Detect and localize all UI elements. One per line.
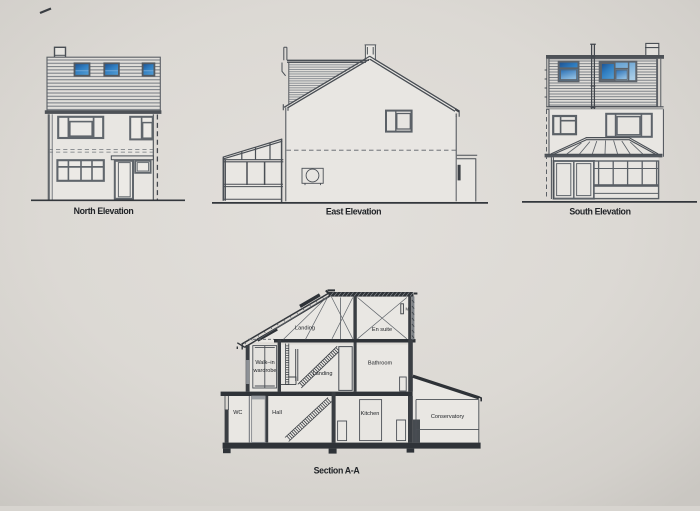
svg-text:Section A-A: Section A-A [314, 465, 361, 475]
svg-text:Bathroom: Bathroom [368, 361, 393, 367]
svg-text:Walk–in: Walk–in [255, 360, 274, 366]
svg-text:M: M [406, 307, 410, 312]
svg-text:North Elevation: North Elevation [74, 206, 134, 216]
svg-text:Hall: Hall [272, 410, 282, 416]
svg-text:Landing: Landing [295, 326, 315, 332]
svg-text:WC: WC [233, 410, 242, 416]
svg-text:Kitchen: Kitchen [361, 411, 380, 417]
svg-text:Landing: Landing [313, 371, 333, 377]
svg-text:En suite: En suite [372, 327, 392, 333]
svg-text:East Elevation: East Elevation [326, 207, 381, 217]
svg-text:wardrobe: wardrobe [253, 368, 277, 374]
svg-text:South Elevation: South Elevation [569, 206, 630, 216]
svg-text:Conservatory: Conservatory [431, 414, 464, 420]
